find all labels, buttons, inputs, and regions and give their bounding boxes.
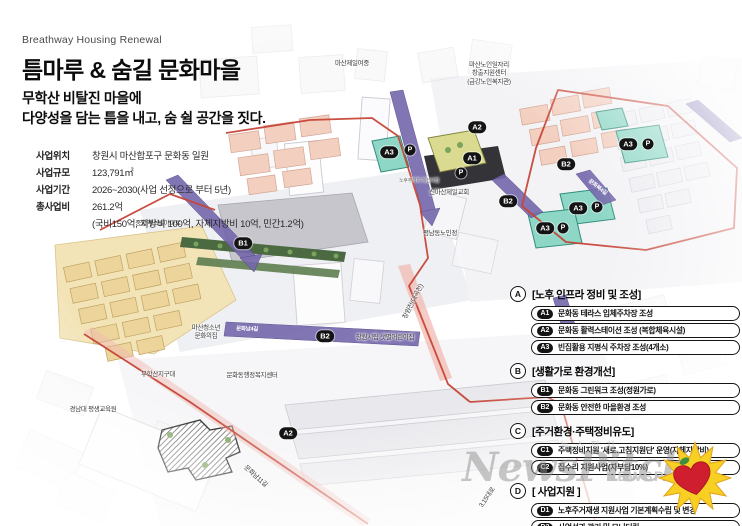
info-row: 사업규모123,791㎡ [36, 163, 304, 180]
parking-badge: P [558, 223, 569, 234]
info-row: 사업위치창원시 마산합포구 문화동 일원 [36, 146, 304, 163]
section-title-c: [주거환경·주택정비유도] [532, 424, 634, 439]
section-title-d: [ 사업지원 ] [532, 484, 580, 499]
code-badge-c1: C1 [537, 446, 553, 456]
map-label-youth-center: 마산청소년 문화의집 [192, 325, 220, 342]
info-row: 총사업비261.2억 [36, 197, 304, 214]
legend-item-a2: A2문화동 활력스테이션 조성 (복합체육시설) [531, 323, 740, 338]
section-circle-a: A [510, 286, 526, 302]
map-label-ribbon-center: 문화남4길 [236, 326, 258, 334]
legend-item-b2: B2문화동 안전한 마을환경 조성 [531, 400, 740, 415]
section-circle-d: D [510, 483, 526, 499]
info-value: 261.2억 [92, 199, 123, 213]
legend-section-b: B [생활가로 환경개선] B1문화동 그린워크 조성(정원가로) B2문화동 … [510, 363, 742, 415]
code-badge-a1: A1 [537, 309, 553, 319]
info-row: (국비150억, 지방비 100억, 자체지방비 10억, 민간1.2억) [36, 214, 304, 231]
map-label-senior-hall: 평남동노인정 [423, 230, 457, 238]
map-badge-b2: B2 [316, 330, 334, 342]
code-badge-a2: A2 [537, 326, 553, 336]
map-label-renewal-area: 노후주거지 개선사업 [399, 178, 439, 185]
legend-item-a1: A1문화동 테라스 입체주차장 조성 [531, 306, 740, 321]
subtitle-line2: 다양성을 담는 틈을 내고, 숨 쉴 공간을 짓다. [22, 108, 266, 128]
info-value: 창원시 마산합포구 문화동 일원 [92, 148, 209, 162]
map-label-kindergarten: 창원시립 샛별어린이집 [356, 334, 414, 342]
map-badge-a1: A1 [463, 152, 481, 164]
section-title-b: [생활가로 환경개선] [532, 364, 615, 379]
map-label-school: 마산제일여중 [335, 60, 369, 68]
map-badge-b2: B2 [499, 195, 517, 207]
info-label: 사업기간 [36, 182, 84, 196]
project-info: 사업위치창원시 마산합포구 문화동 일원 사업규모123,791㎡ 사업기간20… [36, 146, 304, 231]
section-title-a: [노후 인프라 정비 및 조성] [532, 287, 641, 302]
map-badge-a3: A3 [569, 202, 587, 214]
code-badge-d2: D2 [537, 523, 553, 526]
section-circle-b: B [510, 363, 526, 379]
info-label: 사업규모 [36, 165, 84, 179]
map-badge-a2: A2 [279, 427, 297, 439]
parking-badge: P [643, 139, 654, 150]
legend-item-a3: A3빈집활용 지평식 주차장 조성(4개소) [531, 340, 740, 355]
code-badge-a3: A3 [537, 343, 553, 353]
map-label-community-center: 문화동행정복지센터 [226, 372, 277, 380]
legend-item-b1: B1문화동 그린워크 조성(정원가로) [531, 383, 740, 398]
map-badge-a2: A2 [468, 121, 486, 133]
info-label: 사업위치 [36, 148, 84, 162]
map-badge-b2: B2 [557, 158, 575, 170]
map-label-church: 신마산제일교회 [429, 189, 469, 197]
info-row: 사업기간2026~2030(사업 선정으로 부터 5년) [36, 180, 304, 197]
map-label-senior-center: 마산노인일자리 창출지원센터 (금강노인복지관) [467, 61, 511, 86]
map-badge-a3: A3 [619, 138, 637, 150]
code-badge-b1: B1 [537, 386, 553, 396]
map-label-university: 경남대 평생교육원 [70, 406, 117, 414]
legend-item-d2: D2사업성과 관리 및 모니터링 [531, 520, 740, 526]
map-badge-a3: A3 [380, 146, 398, 158]
info-value: 2026~2030(사업 선정으로 부터 5년) [92, 182, 231, 196]
header: Breathway Housing Renewal 틈마루 & 숨길 문화마을 … [22, 34, 266, 129]
info-label: 총사업비 [36, 199, 84, 213]
section-circle-c: C [510, 423, 526, 439]
parking-badge: P [592, 202, 603, 213]
subtitle-line1: 무학산 비탈진 마을에 [22, 88, 266, 108]
map-badge-a3: A3 [536, 222, 554, 234]
legend-section-a: A [노후 인프라 정비 및 조성] A1문화동 테라스 입체주차장 조성 A2… [510, 286, 742, 355]
heart-starburst-logo [652, 438, 738, 518]
page-title: 틈마루 & 숨길 문화마을 [22, 51, 266, 85]
project-eyebrow: Breathway Housing Renewal [22, 34, 266, 46]
infographic-canvas: 마산제일여중 마산노인일자리 창출지원센터 (금강노인복지관) 중앙캐스빌아파트… [0, 0, 742, 526]
parking-badge: P [456, 168, 467, 179]
code-badge-b2: B2 [537, 403, 553, 413]
map-label-police: 무학산지구대 [141, 371, 175, 379]
info-value: (국비150억, 지방비 100억, 자체지방비 10억, 민간1.2억) [92, 216, 304, 230]
code-badge-d1: D1 [537, 506, 553, 516]
parking-badge: P [405, 145, 416, 156]
info-value: 123,791㎡ [92, 165, 133, 179]
map-badge-b1: B1 [234, 237, 252, 249]
code-badge-c2: C2 [537, 463, 553, 473]
